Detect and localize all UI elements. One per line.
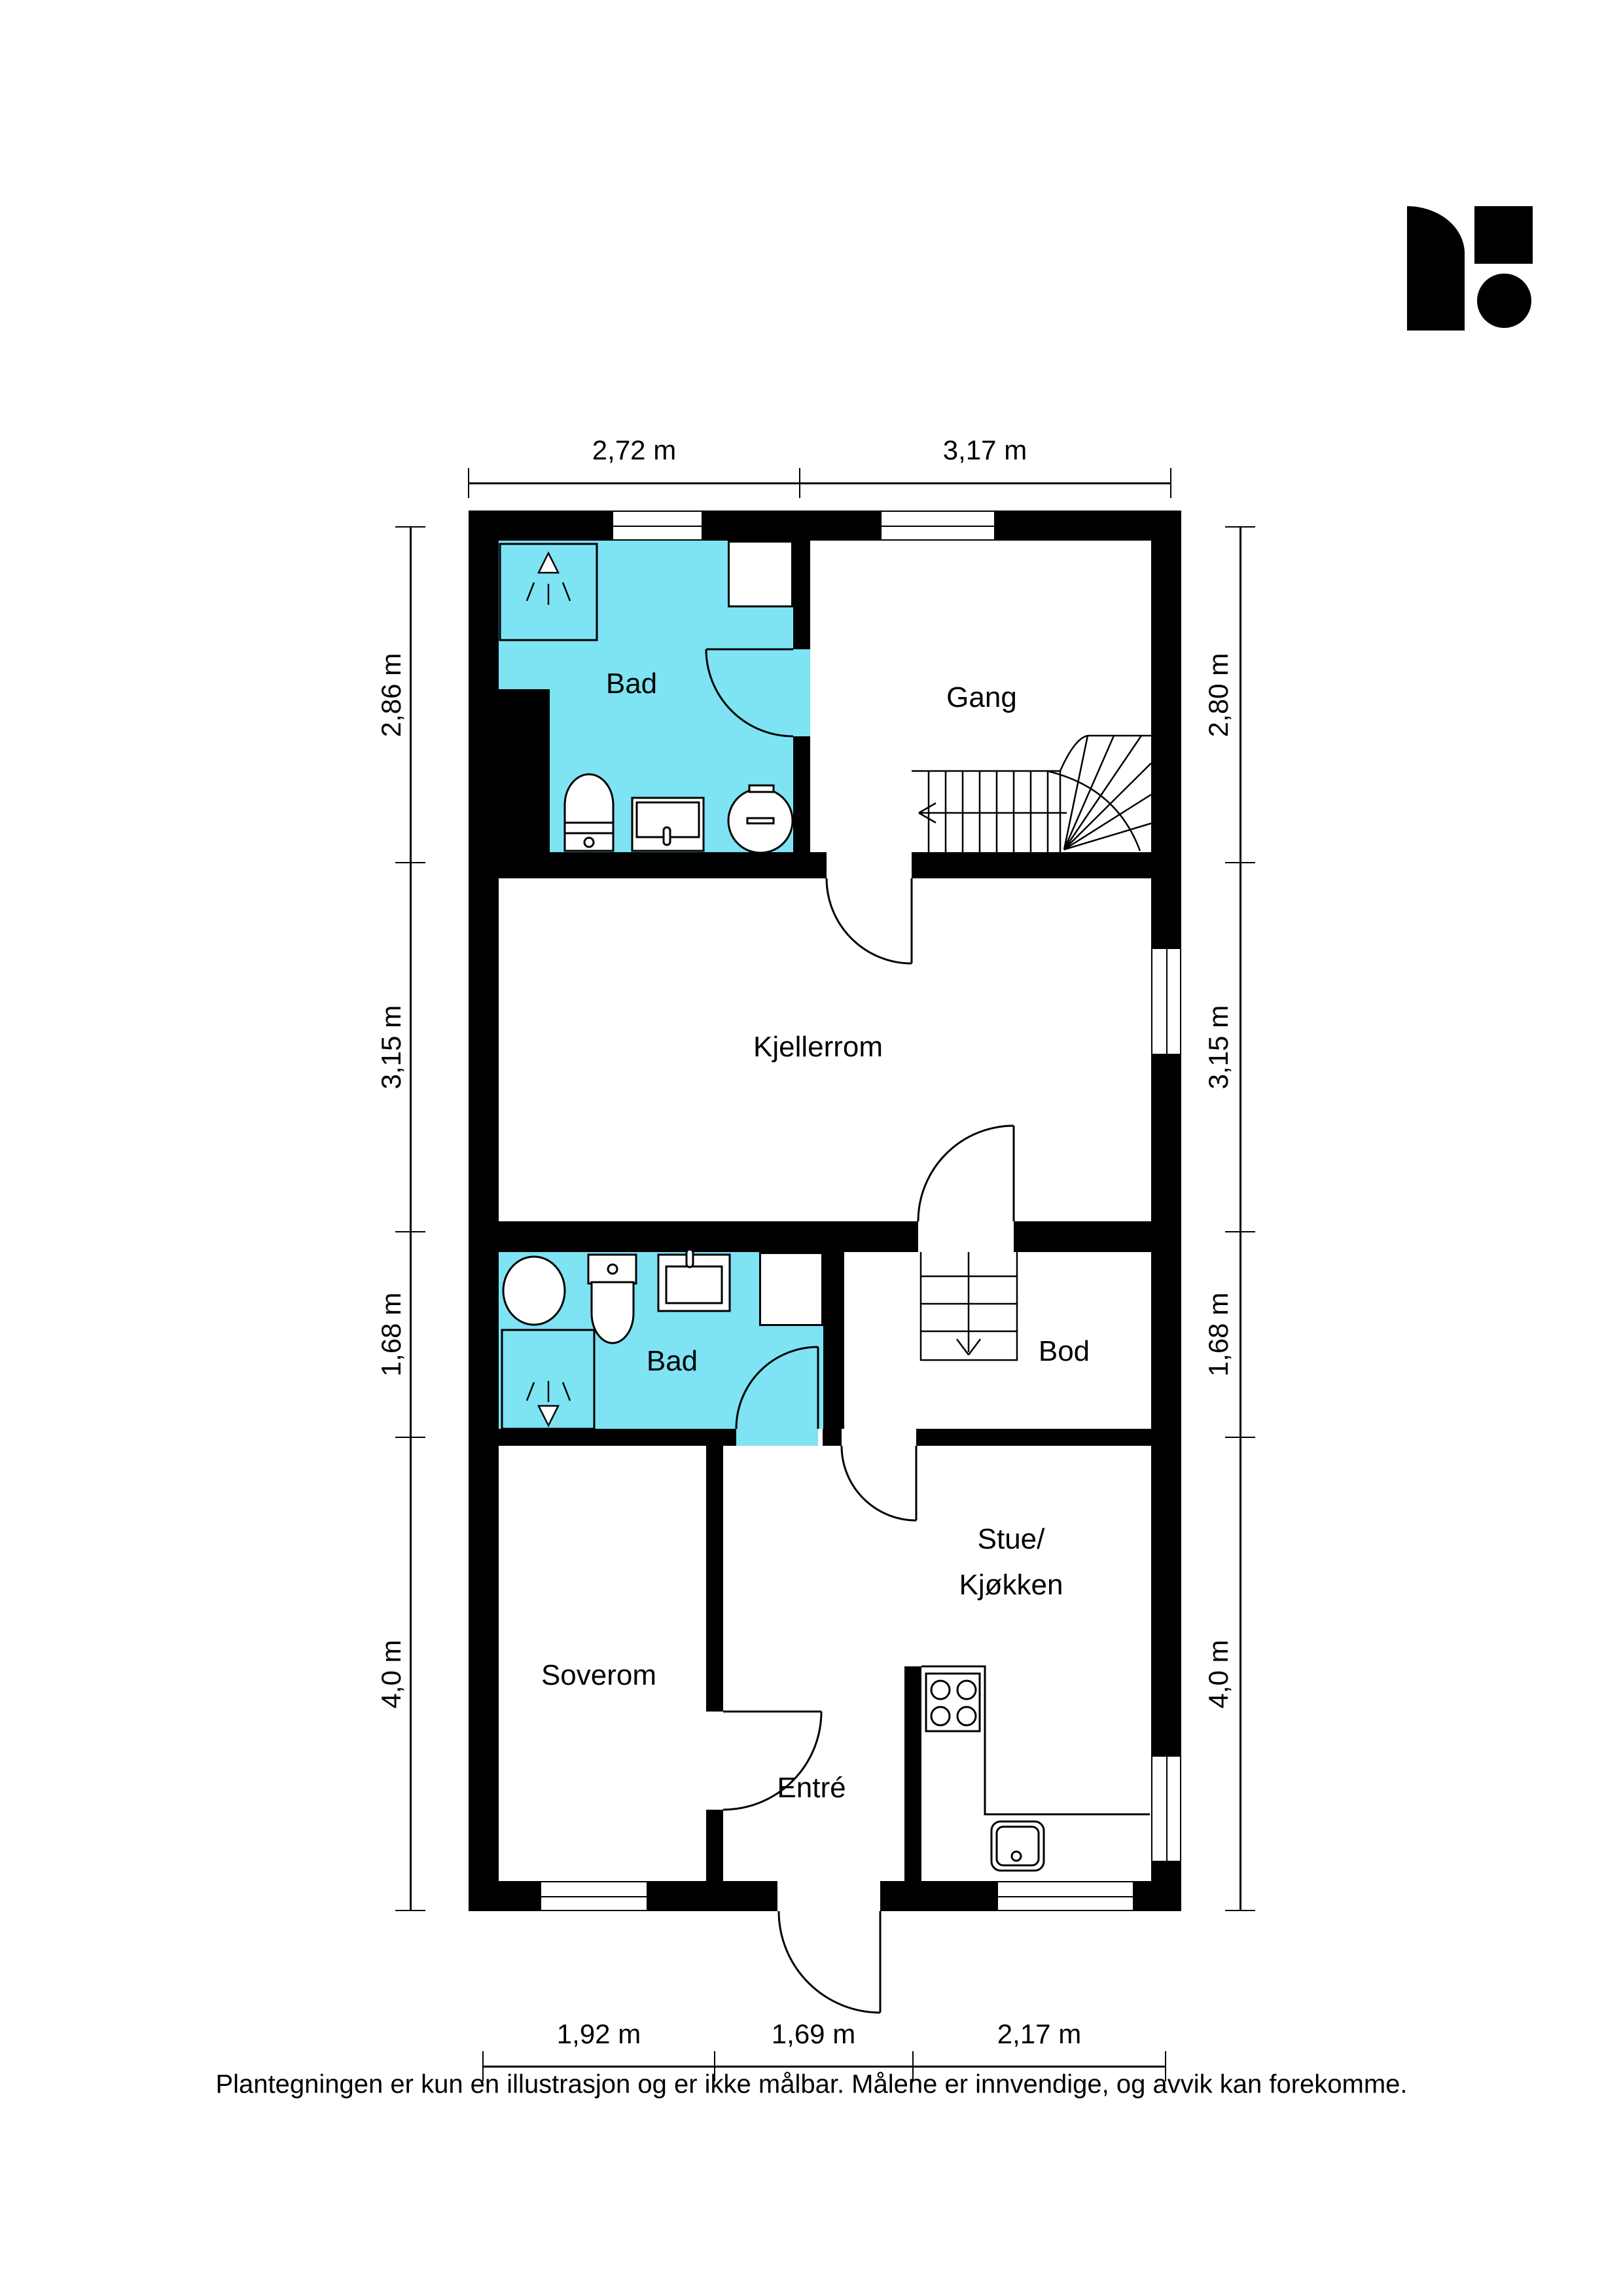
dim-label-left-1: 2,86 m: [376, 653, 407, 737]
dim-label-top-1: 2,72 m: [592, 435, 676, 466]
dim-tick: [1225, 526, 1255, 528]
dim-tick: [1225, 1910, 1255, 1911]
door-gang-kjellerrom: [827, 878, 912, 963]
dim-line-right: [1240, 527, 1241, 1911]
door-bad-lower: [736, 1347, 818, 1429]
dim-label-right-1: 2,80 m: [1203, 653, 1234, 737]
toilet-icon: [565, 774, 613, 851]
dim-tick: [468, 468, 469, 498]
stairs-up-icon: [912, 736, 1151, 852]
dim-label-bottom-2: 1,69 m: [772, 2018, 855, 2050]
toilet-icon: [588, 1255, 636, 1343]
shower-head-icon: [527, 1381, 570, 1426]
dim-tick: [1170, 468, 1171, 498]
stove-icon: [926, 1674, 980, 1731]
plan-vector-layer: [0, 0, 1623, 2296]
room-label-entre: Entré: [777, 1772, 846, 1804]
room-label-bod: Bod: [1039, 1335, 1090, 1368]
dim-label-left-2: 3,15 m: [376, 1005, 407, 1089]
room-label-soverom: Soverom: [541, 1659, 656, 1692]
dim-label-left-3: 1,68 m: [376, 1293, 407, 1376]
dim-label-left-4: 4,0 m: [376, 1640, 407, 1708]
door-entrance: [779, 1911, 880, 2013]
dim-label-right-4: 4,0 m: [1203, 1640, 1234, 1708]
room-label-bad-lower: Bad: [647, 1345, 698, 1378]
dim-label-right-3: 1,68 m: [1203, 1293, 1234, 1376]
room-label-kjellerrom: Kjellerrom: [753, 1031, 883, 1064]
door-stue: [842, 1446, 916, 1520]
stairs-down-icon: [921, 1252, 1017, 1360]
disclaimer-text: Plantegningen er kun en illustrasjon og …: [215, 2070, 1407, 2100]
floor-plan: Bad Gang Kjellerrom Bad Bod Soverom Stue…: [0, 0, 1623, 2296]
dim-tick: [1225, 862, 1255, 863]
sink-icon: [658, 1249, 730, 1311]
door-bad-top: [706, 649, 793, 736]
dim-tick: [1225, 1437, 1255, 1438]
room-label-bad-top: Bad: [606, 668, 657, 700]
washing-machine-icon: [503, 1257, 565, 1325]
sink-icon: [632, 798, 704, 851]
dim-line-top: [469, 482, 1171, 484]
door-kjellerrom-stairs: [918, 1126, 1014, 1221]
washing-machine-icon: [728, 785, 793, 853]
kitchen-sink-icon: [991, 1821, 1044, 1871]
dim-tick: [395, 1437, 425, 1438]
dim-label-bottom-3: 2,17 m: [997, 2018, 1081, 2050]
shower-head-icon: [527, 553, 570, 605]
dim-tick: [395, 1910, 425, 1911]
dim-label-top-2: 3,17 m: [943, 435, 1027, 466]
dim-tick: [799, 468, 800, 498]
dim-label-bottom-1: 1,92 m: [557, 2018, 641, 2050]
room-label-gang: Gang: [946, 681, 1017, 714]
dim-tick: [395, 1231, 425, 1232]
room-label-stue: Stue/: [978, 1523, 1045, 1556]
dim-tick: [395, 862, 425, 863]
dim-line-bottom: [483, 2066, 1166, 2068]
room-label-kjokken: Kjøkken: [959, 1569, 1063, 1602]
dim-line-left: [410, 527, 412, 1911]
dim-label-right-2: 3,15 m: [1203, 1005, 1234, 1089]
dim-tick: [395, 526, 425, 528]
dim-tick: [1225, 1231, 1255, 1232]
